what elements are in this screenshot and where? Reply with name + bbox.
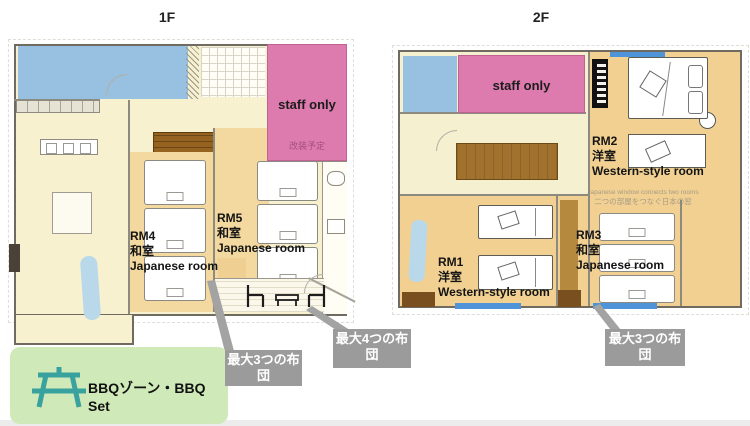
floor-2f-title: 2F — [521, 9, 561, 25]
closet-block — [557, 290, 581, 307]
living-room-extension — [14, 315, 134, 345]
kitchen-island — [40, 139, 98, 155]
floorplan-1f: staff only 改装予定 RM4 和室 Japanese room RM5… — [14, 44, 347, 345]
picnic-table-icon — [30, 365, 88, 409]
staircase-2f — [592, 59, 608, 108]
staff-only-zone-1f: staff only 改装予定 — [267, 44, 347, 161]
bbq-zone-label: BBQゾーン・BBQ Set — [88, 378, 228, 414]
connecting-window-note: Japanese window connects two rooms 二つの部屋… — [558, 189, 728, 206]
wall — [680, 200, 682, 306]
callout-futon-max3-1f: 最大3つの布 団 — [225, 350, 302, 386]
room-type-jp: 洋室 — [592, 149, 704, 164]
wall — [213, 128, 215, 312]
callout-futon-max4-1f: 最大4つの布 団 — [333, 329, 411, 368]
toilet-zone-2f — [403, 56, 457, 112]
entry-grid-area — [201, 47, 265, 97]
room-label-rm4: RM4 和室 Japanese room — [130, 229, 218, 274]
callout-text: 団 — [605, 347, 685, 363]
balcony-window-strip — [455, 303, 521, 309]
room-id: RM2 — [592, 134, 704, 149]
floorplan-2f: staff only Japanese window connects two … — [398, 50, 742, 308]
rm2-double-bed — [628, 57, 708, 119]
room-label-rm2: RM2 洋室 Western-style room — [592, 134, 704, 179]
rm1-bed — [478, 205, 553, 239]
wall — [128, 100, 130, 314]
veranda-chairs-icon — [236, 282, 336, 312]
room-label-rm3: RM3 和室 Japanese room — [576, 228, 664, 273]
room-type-en: Japanese room — [130, 259, 218, 274]
room-type-jp: 和室 — [217, 226, 305, 241]
staff-note: 改装予定 — [268, 139, 346, 152]
callout-text: 最大3つの布 — [605, 331, 685, 347]
bbq-zone: BBQゾーン・BBQ Set — [10, 347, 228, 424]
closet-block — [218, 258, 246, 280]
callout-text: 最大4つの布 — [333, 331, 411, 347]
dining-table — [52, 192, 92, 234]
staff-only-label: staff only — [459, 78, 584, 93]
wall-fixture — [9, 244, 20, 272]
wall — [14, 99, 100, 101]
room-type-en: Japanese room — [576, 258, 664, 273]
closet-block — [402, 292, 435, 307]
room-label-rm1: RM1 洋室 Western-style room — [438, 255, 550, 300]
room-type-jp: 洋室 — [438, 270, 550, 285]
floor-1f-title: 1F — [147, 9, 187, 25]
wall-hatch — [186, 46, 199, 99]
lounge-chair — [408, 220, 427, 283]
note-en: Japanese window connects two rooms — [558, 189, 728, 197]
room-id: RM3 — [576, 228, 664, 243]
room-type-en: Western-style room — [438, 285, 550, 300]
note-jp: 二つの部屋をつなぐ日本の窓 — [558, 197, 728, 206]
callout-text: 団 — [333, 347, 411, 363]
floorplan-image: 1F 2F — [0, 0, 750, 426]
bathroom-zone-1f — [18, 46, 188, 99]
room-type-en: Western-style room — [592, 164, 704, 179]
room-type-jp: 和室 — [576, 243, 664, 258]
staff-only-zone-2f: staff only — [458, 55, 585, 113]
room-type-jp: 和室 — [130, 244, 218, 259]
callout-futon-max3-2f: 最大3つの布 団 — [605, 329, 685, 366]
wall — [556, 196, 558, 306]
room-id: RM1 — [438, 255, 550, 270]
room-id: RM5 — [217, 211, 305, 226]
callout-text: 最大3つの布 — [225, 352, 302, 368]
room-type-en: Japanese room — [217, 241, 305, 256]
room-id: RM4 — [130, 229, 218, 244]
kitchen-counter — [16, 100, 100, 113]
room-label-rm5: RM5 和室 Japanese room — [217, 211, 305, 256]
storage-closet-2f — [456, 143, 558, 180]
staff-only-label: staff only — [268, 97, 346, 112]
callout-text: 団 — [225, 368, 302, 384]
